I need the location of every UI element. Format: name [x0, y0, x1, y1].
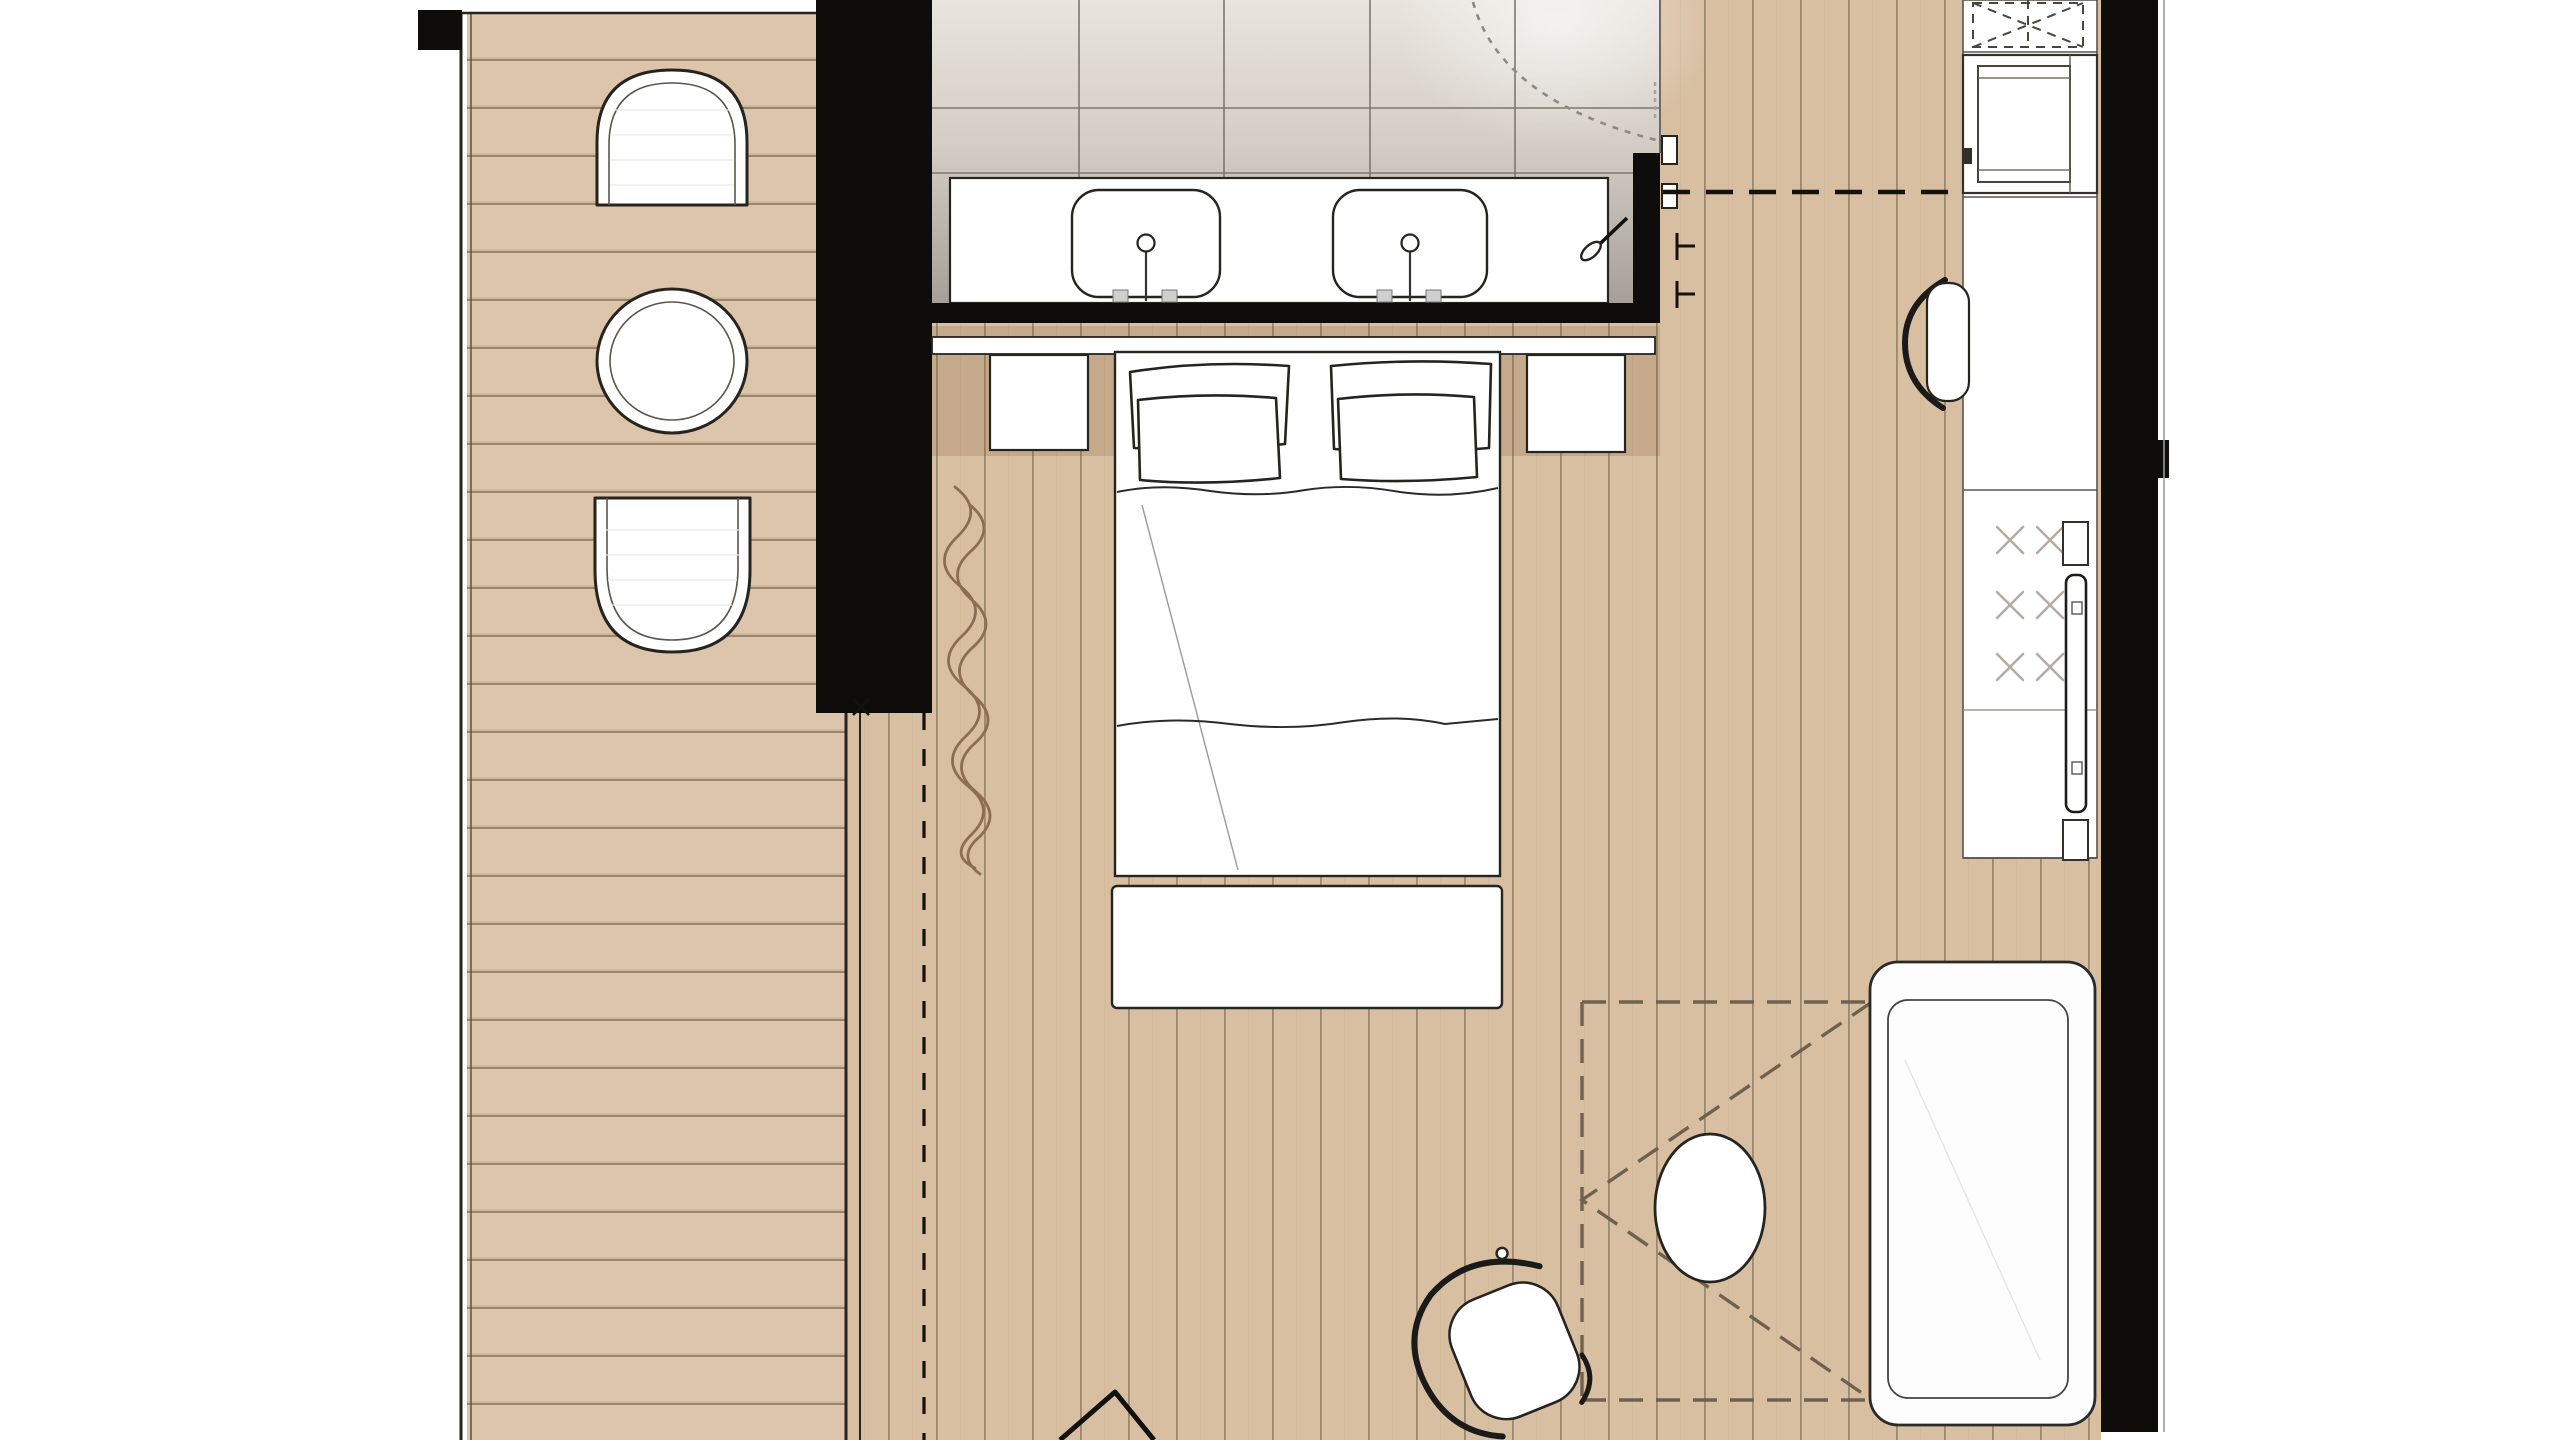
appliance [1963, 55, 2097, 193]
bathroom [930, 0, 1715, 323]
right-wall-nub [2155, 440, 2169, 478]
bathroom-door-wall [1633, 153, 1660, 323]
deck-round-table [597, 289, 747, 433]
sink-left [1072, 190, 1220, 302]
nightstand-right [1527, 355, 1625, 452]
deck-floor [467, 13, 846, 1440]
pillow-front-left [1138, 395, 1280, 482]
drain-tab [1162, 290, 1177, 302]
door-jamb-bottom [1662, 184, 1677, 208]
faucet [1138, 235, 1155, 252]
drain-tab [1426, 290, 1441, 302]
tv-bracket-bottom [2063, 820, 2088, 860]
nightstand-left [990, 355, 1088, 450]
drain-tab [1113, 290, 1128, 302]
faucet [1402, 235, 1419, 252]
wall-below-vanity [930, 303, 1660, 323]
tv-bracket-top [2063, 522, 2088, 565]
pillow-front-right [1338, 394, 1477, 481]
bed [1115, 352, 1500, 876]
sink-right [1333, 190, 1487, 302]
appliance-handle [1964, 148, 1972, 164]
tall-column [1963, 0, 2097, 860]
deck-lounge-chair-top [597, 70, 747, 205]
door-jamb-top [1662, 136, 1677, 164]
right-wall [2101, 0, 2158, 1432]
floor-plan-drawing [0, 0, 2560, 1440]
foot-bench [1112, 886, 1502, 1008]
floor-plan-page [0, 0, 2560, 1440]
tv-mount-arm [2072, 762, 2082, 774]
tv-mount-arm [2072, 602, 2082, 614]
drain-tab [1377, 290, 1392, 302]
daybed [1870, 962, 2095, 1425]
pouf-table [1655, 1134, 1765, 1282]
wall-pier-top-left [418, 10, 462, 50]
privacy-wall [816, 0, 932, 713]
deck-lounge-chair-bottom [595, 498, 750, 652]
desk-chair-seat [1927, 283, 1969, 401]
deck [418, 10, 846, 1440]
right-wall-group [2101, 0, 2169, 1432]
vanity-counter [950, 178, 1608, 303]
